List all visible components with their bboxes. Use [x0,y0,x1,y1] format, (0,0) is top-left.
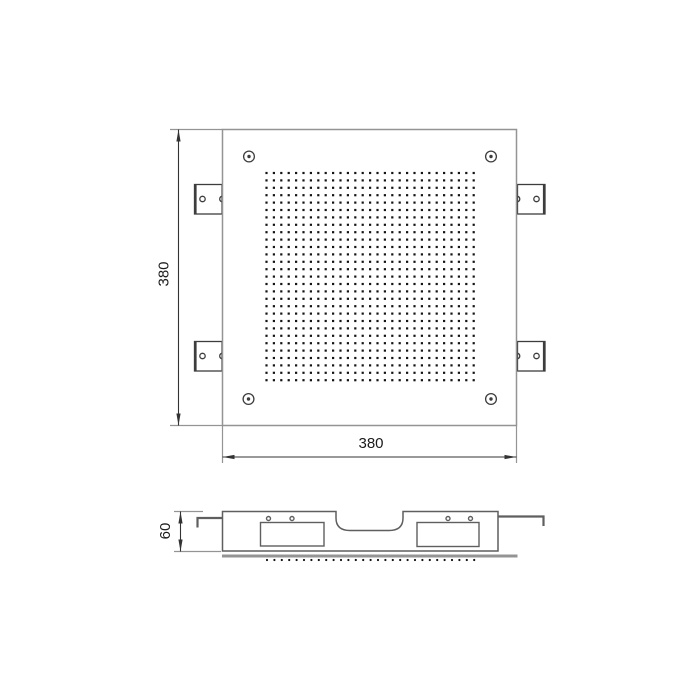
top-view: 380 380 [155,130,545,464]
bracket-hole [200,353,205,358]
side-bracket-left [198,518,223,528]
bracket-hole [534,353,539,358]
side-height-dimension-label: 60 [157,523,174,540]
mounting-bracket-left-top [195,185,226,215]
width-dimension-label: 380 [358,435,383,452]
bracket-hole [534,196,539,201]
side-view: 60 [157,512,544,562]
side-bracket-right [498,517,544,527]
width-dimension: 380 [223,426,517,463]
corner-screw-bottom-left [243,394,254,405]
side-body-outline [223,512,499,552]
corner-screw-top-right [486,151,497,162]
height-dimension: 380 [155,130,222,426]
height-dimension-label: 380 [155,261,172,286]
bracket-hole [200,196,205,201]
nozzle-row [266,559,475,561]
mounting-bracket-right-top [514,185,545,215]
corner-screw-bottom-right [486,394,497,405]
mounting-bracket-right-bottom [514,342,545,372]
technical-drawing: 380 380 60 [0,0,700,700]
perforation-grid [265,172,474,381]
mounting-bracket-left-bottom [195,342,226,372]
corner-screw-top-left [244,151,255,162]
